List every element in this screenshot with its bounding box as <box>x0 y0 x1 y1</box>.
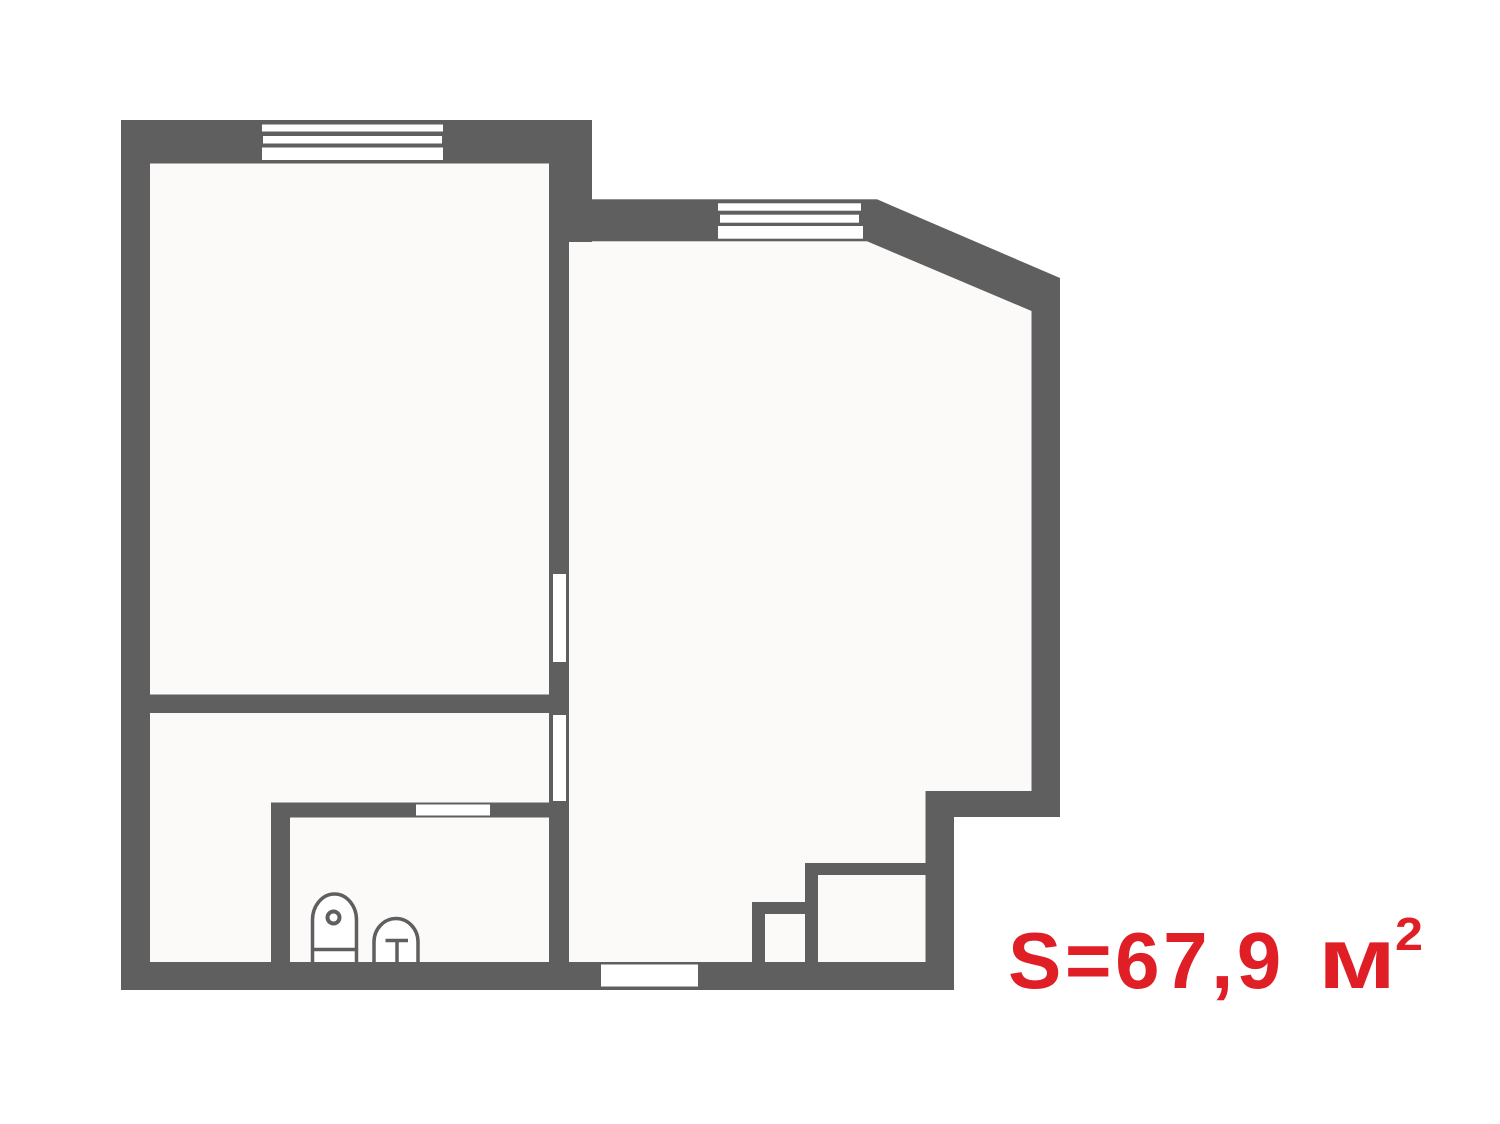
svg-text:2: 2 <box>1395 908 1423 960</box>
svg-text:м: м <box>1318 911 1396 1007</box>
svg-text:S=67,9: S=67,9 <box>1008 916 1285 1005</box>
